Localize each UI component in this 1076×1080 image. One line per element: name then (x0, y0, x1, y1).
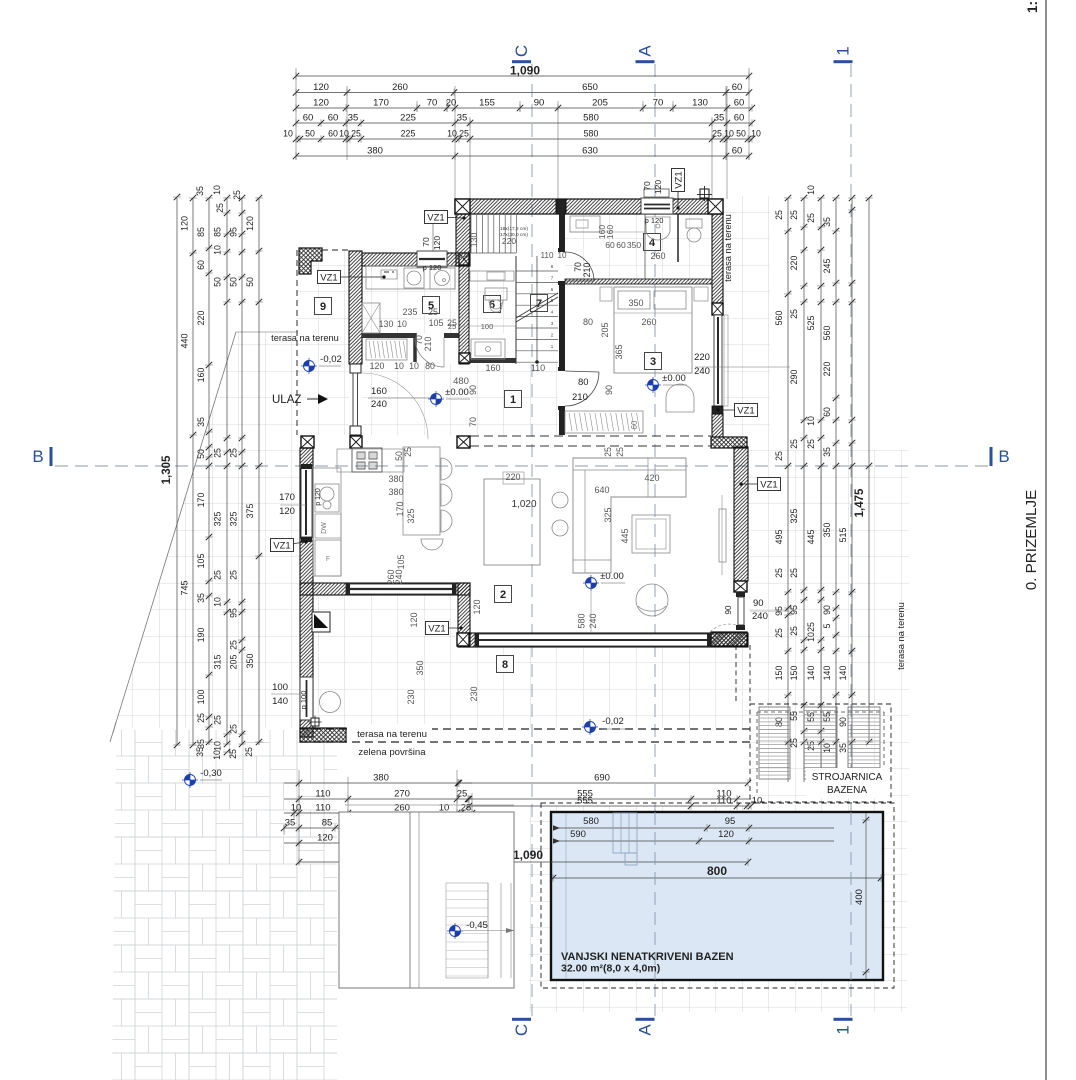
svg-text:25: 25 (229, 724, 239, 734)
svg-text:10: 10 (806, 632, 816, 642)
svg-text:580: 580 (583, 113, 599, 124)
svg-text:70: 70 (421, 237, 431, 247)
svg-text:590: 590 (570, 829, 586, 840)
svg-text:60: 60 (822, 407, 832, 417)
svg-text:210: 210 (572, 392, 588, 403)
svg-text:0. PRIZEMLJE: 0. PRIZEMLJE (1023, 490, 1040, 590)
svg-text:170: 170 (373, 98, 389, 109)
svg-text:10: 10 (394, 361, 404, 371)
svg-text:ULAZ: ULAZ (272, 394, 301, 406)
svg-text:580: 580 (577, 613, 587, 628)
svg-text:10: 10 (213, 245, 223, 255)
svg-text:60: 60 (303, 113, 314, 124)
svg-text:60: 60 (630, 420, 639, 429)
svg-text:90: 90 (838, 717, 848, 727)
svg-text:VZ1: VZ1 (320, 273, 337, 284)
svg-text:10: 10 (806, 416, 816, 426)
svg-text:50: 50 (736, 129, 746, 139)
svg-text:60: 60 (616, 240, 626, 250)
svg-text:120: 120 (653, 180, 663, 194)
svg-text:25: 25 (232, 190, 242, 200)
svg-text:10: 10 (397, 319, 407, 329)
svg-text:10: 10 (213, 741, 223, 751)
svg-text:A: A (636, 45, 655, 57)
svg-text:190: 190 (196, 628, 206, 643)
svg-text:220: 220 (694, 352, 710, 363)
svg-text:1: 1 (834, 1025, 853, 1034)
svg-text:245: 245 (822, 259, 832, 274)
svg-text:35: 35 (348, 113, 359, 124)
svg-text:25: 25 (229, 448, 239, 458)
svg-text:140: 140 (838, 666, 848, 681)
svg-text:60: 60 (734, 98, 745, 109)
svg-text:B: B (32, 447, 43, 466)
svg-text:VZ1: VZ1 (427, 213, 444, 224)
svg-text:25: 25 (213, 570, 223, 580)
svg-text:50: 50 (245, 277, 255, 287)
svg-text:1: 1 (510, 394, 516, 406)
svg-text:35: 35 (714, 113, 725, 124)
svg-text:p 100: p 100 (299, 691, 308, 710)
svg-text:55: 55 (806, 712, 816, 722)
svg-text:160: 160 (605, 225, 615, 239)
svg-text:440: 440 (180, 333, 190, 348)
svg-text:70: 70 (642, 181, 652, 191)
svg-text:10: 10 (557, 251, 567, 260)
svg-text:80: 80 (578, 377, 589, 388)
svg-text:VANJSKI NENATKRIVENI BAZEN: VANJSKI NENATKRIVENI BAZEN (561, 951, 734, 963)
svg-text:205: 205 (592, 98, 608, 109)
svg-text:800: 800 (707, 864, 727, 878)
svg-text:120: 120 (245, 216, 255, 231)
svg-text:10: 10 (213, 597, 223, 607)
svg-text:50: 50 (196, 449, 206, 459)
svg-text:F: F (326, 556, 330, 563)
svg-text:25: 25 (806, 439, 816, 449)
svg-text:100: 100 (272, 682, 288, 693)
svg-text:85: 85 (213, 227, 223, 237)
svg-text:35: 35 (822, 217, 832, 227)
svg-text:55: 55 (789, 711, 799, 721)
svg-text:150: 150 (789, 666, 799, 681)
svg-text:350: 350 (415, 660, 425, 675)
svg-text:95: 95 (229, 227, 239, 237)
svg-text:3: 3 (650, 356, 656, 368)
svg-text:495: 495 (774, 530, 784, 545)
svg-text:110: 110 (716, 796, 731, 807)
svg-text:1,090: 1,090 (510, 64, 540, 78)
svg-text:50: 50 (305, 129, 315, 139)
svg-text:160: 160 (485, 363, 500, 373)
svg-text:18x(17,2 cm): 18x(17,2 cm) (500, 226, 528, 232)
svg-text:25: 25 (403, 447, 413, 457)
svg-text:25: 25 (774, 210, 784, 220)
svg-text:25: 25 (806, 213, 816, 223)
svg-text:90: 90 (724, 605, 733, 614)
svg-text:-0,45: -0,45 (466, 920, 488, 931)
svg-text:25: 25 (774, 628, 784, 638)
svg-text:10: 10 (291, 803, 302, 814)
svg-text:terasa na terenu: terasa na terenu (357, 729, 427, 740)
svg-text:35: 35 (195, 186, 205, 196)
svg-text:380: 380 (367, 146, 383, 157)
svg-text:1: 1 (834, 46, 853, 55)
svg-text:260: 260 (650, 251, 665, 261)
svg-text:120: 120 (432, 236, 442, 250)
svg-text:zelena površina: zelena površina (358, 747, 426, 758)
svg-text:10: 10 (751, 129, 761, 139)
svg-text:260: 260 (392, 82, 408, 93)
svg-text:p 120: p 120 (315, 488, 322, 506)
svg-text:630: 630 (582, 146, 598, 157)
svg-text:205: 205 (600, 322, 610, 337)
svg-text:35: 35 (195, 747, 205, 757)
svg-text:25: 25 (213, 715, 223, 725)
svg-text:350: 350 (628, 298, 643, 308)
svg-text:25: 25 (774, 451, 784, 461)
svg-text:90: 90 (753, 598, 764, 609)
svg-text:220: 220 (196, 311, 206, 326)
svg-text:235: 235 (403, 307, 418, 317)
svg-text:110: 110 (540, 251, 553, 260)
svg-text:10: 10 (339, 129, 349, 139)
svg-text:240: 240 (752, 611, 768, 622)
svg-text:25: 25 (789, 210, 799, 220)
svg-text:VZ1: VZ1 (760, 480, 777, 491)
svg-text:A: A (636, 1024, 655, 1036)
svg-text:VZ1: VZ1 (428, 624, 445, 635)
svg-text:25: 25 (789, 738, 799, 748)
svg-text:70: 70 (427, 98, 438, 109)
svg-text:560: 560 (774, 311, 784, 326)
svg-text:25: 25 (603, 447, 613, 457)
svg-text:B: B (998, 447, 1009, 466)
svg-text:95: 95 (229, 608, 239, 618)
svg-text:25: 25 (228, 749, 238, 759)
svg-text:20: 20 (446, 98, 457, 109)
svg-text:80: 80 (425, 361, 435, 371)
svg-text:1,475: 1,475 (854, 488, 866, 517)
svg-text:35: 35 (285, 818, 296, 829)
svg-text:35: 35 (457, 113, 468, 124)
svg-text:10: 10 (806, 185, 816, 195)
svg-text:-0,30: -0,30 (200, 768, 222, 779)
svg-text:10: 10 (212, 750, 222, 760)
svg-text:100: 100 (196, 690, 206, 705)
svg-text:85: 85 (196, 227, 206, 237)
svg-text:220: 220 (505, 472, 520, 482)
svg-text:420: 420 (644, 473, 659, 483)
svg-text:80: 80 (583, 317, 593, 327)
svg-text:325: 325 (603, 507, 613, 522)
svg-text:25: 25 (789, 626, 799, 636)
svg-text:25: 25 (789, 439, 799, 449)
svg-text:25: 25 (244, 747, 254, 757)
svg-text:1,305: 1,305 (161, 455, 173, 484)
svg-text:445: 445 (620, 528, 630, 543)
svg-text:1:: 1: (1025, 1, 1040, 13)
svg-text:220: 220 (789, 256, 799, 271)
svg-text:120: 120 (279, 506, 295, 517)
svg-text:480: 480 (453, 376, 469, 387)
svg-text:25: 25 (789, 309, 799, 319)
svg-text:260: 260 (641, 317, 656, 327)
svg-text:380: 380 (388, 474, 403, 484)
svg-text:90: 90 (822, 605, 832, 615)
svg-text:25: 25 (712, 129, 722, 139)
svg-text:25: 25 (213, 448, 223, 458)
svg-text:120: 120 (409, 612, 419, 627)
svg-text:130: 130 (692, 98, 708, 109)
svg-text:155: 155 (479, 98, 495, 109)
svg-text:140: 140 (806, 666, 816, 681)
svg-text:120: 120 (180, 216, 190, 231)
svg-text:230: 230 (469, 686, 479, 701)
svg-text:10: 10 (409, 361, 419, 371)
svg-text:10: 10 (447, 129, 457, 139)
svg-text:105: 105 (196, 554, 206, 569)
svg-text:90: 90 (468, 385, 478, 395)
svg-text:555: 555 (577, 796, 593, 807)
svg-text:325: 325 (789, 509, 799, 524)
svg-text:325: 325 (229, 512, 239, 527)
svg-text:210: 210 (582, 263, 592, 278)
svg-text:365: 365 (614, 344, 624, 359)
svg-text:290: 290 (789, 370, 799, 385)
svg-text:640: 640 (594, 485, 609, 495)
svg-text:25: 25 (806, 741, 816, 751)
svg-text:32.00 m²(8,0 x 4,0m): 32.00 m²(8,0 x 4,0m) (561, 963, 660, 975)
svg-text:220: 220 (822, 362, 832, 377)
svg-text:10: 10 (752, 796, 763, 807)
svg-text:210: 210 (423, 337, 433, 352)
svg-text:VZ1: VZ1 (273, 541, 290, 552)
svg-text:25: 25 (229, 570, 239, 580)
svg-text:120: 120 (370, 361, 385, 371)
svg-text:130: 130 (379, 319, 394, 329)
svg-text:35: 35 (822, 447, 832, 457)
svg-text:120: 120 (317, 833, 333, 844)
svg-text:315: 315 (213, 655, 223, 670)
svg-text:25: 25 (428, 307, 438, 317)
svg-text:170: 170 (196, 493, 206, 508)
svg-text:60: 60 (328, 113, 339, 124)
svg-text:380: 380 (388, 487, 403, 497)
svg-text:230: 230 (406, 689, 416, 704)
svg-text:745: 745 (180, 580, 190, 595)
svg-text:60: 60 (605, 240, 615, 250)
svg-text:350: 350 (822, 523, 832, 538)
svg-text:55: 55 (822, 712, 832, 722)
svg-text:350: 350 (245, 654, 255, 669)
svg-text:580: 580 (583, 816, 599, 827)
svg-text:350: 350 (627, 240, 641, 250)
svg-text:325: 325 (213, 512, 223, 527)
svg-text:2: 2 (500, 589, 506, 601)
svg-text:8: 8 (502, 659, 508, 671)
svg-text:VZ1: VZ1 (737, 406, 754, 417)
svg-text:50: 50 (213, 277, 223, 287)
svg-text:240: 240 (588, 613, 598, 628)
svg-text:580: 580 (584, 129, 599, 139)
svg-text:120: 120 (313, 82, 329, 93)
svg-text:140: 140 (272, 696, 288, 707)
svg-text:1,090: 1,090 (513, 848, 543, 862)
svg-text:110: 110 (455, 251, 468, 260)
svg-text:95: 95 (725, 816, 736, 827)
svg-text:170: 170 (395, 501, 405, 516)
svg-text:25: 25 (774, 568, 784, 578)
svg-text:35: 35 (196, 417, 206, 427)
svg-text:10: 10 (212, 185, 222, 195)
svg-text:60: 60 (328, 129, 338, 139)
svg-text:9: 9 (320, 301, 326, 313)
svg-text:25: 25 (351, 129, 361, 139)
svg-text:-0,02: -0,02 (320, 354, 342, 365)
svg-text:240: 240 (394, 569, 404, 584)
svg-text:-0,02: -0,02 (602, 716, 624, 727)
svg-text:120: 120 (313, 98, 329, 109)
svg-text:25: 25 (789, 568, 799, 578)
svg-text:110: 110 (315, 789, 330, 800)
svg-text:160: 160 (196, 368, 206, 383)
svg-text:25: 25 (459, 129, 469, 139)
svg-text:VZ1: VZ1 (674, 171, 685, 188)
svg-text:terasa na terenu: terasa na terenu (723, 214, 733, 282)
svg-text:5: 5 (822, 623, 832, 628)
svg-text:100: 100 (481, 322, 494, 331)
svg-text:95: 95 (789, 605, 799, 615)
svg-text:60: 60 (732, 82, 743, 93)
svg-text:90: 90 (604, 385, 614, 395)
svg-text:60: 60 (196, 260, 206, 270)
svg-text:325: 325 (406, 508, 416, 523)
svg-text:650: 650 (582, 82, 598, 93)
svg-text:p 120: p 120 (423, 263, 442, 272)
svg-text:35: 35 (196, 593, 206, 603)
svg-text:170: 170 (279, 492, 295, 503)
svg-text:380: 380 (373, 773, 389, 784)
svg-text:70: 70 (468, 417, 478, 427)
svg-text:160: 160 (371, 386, 387, 397)
svg-text:60: 60 (732, 146, 743, 157)
svg-text:690: 690 (594, 773, 610, 784)
svg-text:515: 515 (838, 528, 848, 543)
svg-text:terasa na terenu: terasa na terenu (896, 602, 906, 670)
svg-text:110: 110 (315, 803, 330, 814)
svg-text:120: 120 (472, 599, 482, 614)
svg-text:70: 70 (653, 98, 664, 109)
svg-text:C: C (512, 1024, 531, 1036)
svg-text:25: 25 (215, 203, 225, 213)
svg-text:560: 560 (822, 326, 832, 341)
svg-text:10: 10 (724, 129, 734, 139)
svg-text:110: 110 (531, 363, 545, 373)
svg-text:240: 240 (694, 366, 710, 377)
svg-text:270: 270 (394, 789, 410, 800)
svg-text:25: 25 (457, 789, 468, 800)
svg-text:445: 445 (806, 530, 816, 545)
svg-text:85: 85 (322, 818, 333, 829)
svg-text:150: 150 (774, 666, 784, 681)
svg-text:25: 25 (448, 322, 456, 331)
svg-text:525: 525 (806, 316, 816, 331)
svg-text:STROJARNICA: STROJARNICA (812, 772, 883, 783)
svg-text:25: 25 (806, 622, 816, 632)
svg-text:50: 50 (229, 277, 239, 287)
svg-text:225: 225 (400, 113, 416, 124)
svg-text:225: 225 (401, 129, 416, 139)
svg-text:BAZENA: BAZENA (827, 785, 867, 796)
svg-text:90: 90 (534, 98, 545, 109)
svg-text:120: 120 (718, 829, 734, 840)
svg-text:C: C (512, 45, 531, 57)
svg-text:25: 25 (229, 640, 239, 650)
svg-text:105: 105 (429, 318, 444, 328)
svg-text:205: 205 (229, 655, 239, 670)
svg-text:400: 400 (854, 889, 865, 905)
svg-text:DW: DW (321, 522, 328, 534)
svg-text:±0.00: ±0.00 (662, 373, 686, 384)
svg-text:25: 25 (615, 447, 625, 457)
svg-text:140: 140 (822, 666, 832, 681)
svg-text:375: 375 (245, 504, 255, 519)
svg-text:1,020: 1,020 (511, 499, 536, 510)
svg-text:p 120: p 120 (645, 216, 664, 225)
svg-text:10: 10 (283, 129, 293, 139)
svg-text:240: 240 (371, 399, 387, 410)
svg-text:60: 60 (734, 113, 745, 124)
svg-text:105: 105 (396, 555, 406, 570)
svg-text:±0.00: ±0.00 (445, 387, 469, 398)
svg-text:220: 220 (502, 236, 516, 246)
svg-text:terasa na terenu: terasa na terenu (271, 333, 339, 343)
svg-text:25: 25 (196, 713, 206, 723)
svg-text:35: 35 (838, 743, 848, 753)
